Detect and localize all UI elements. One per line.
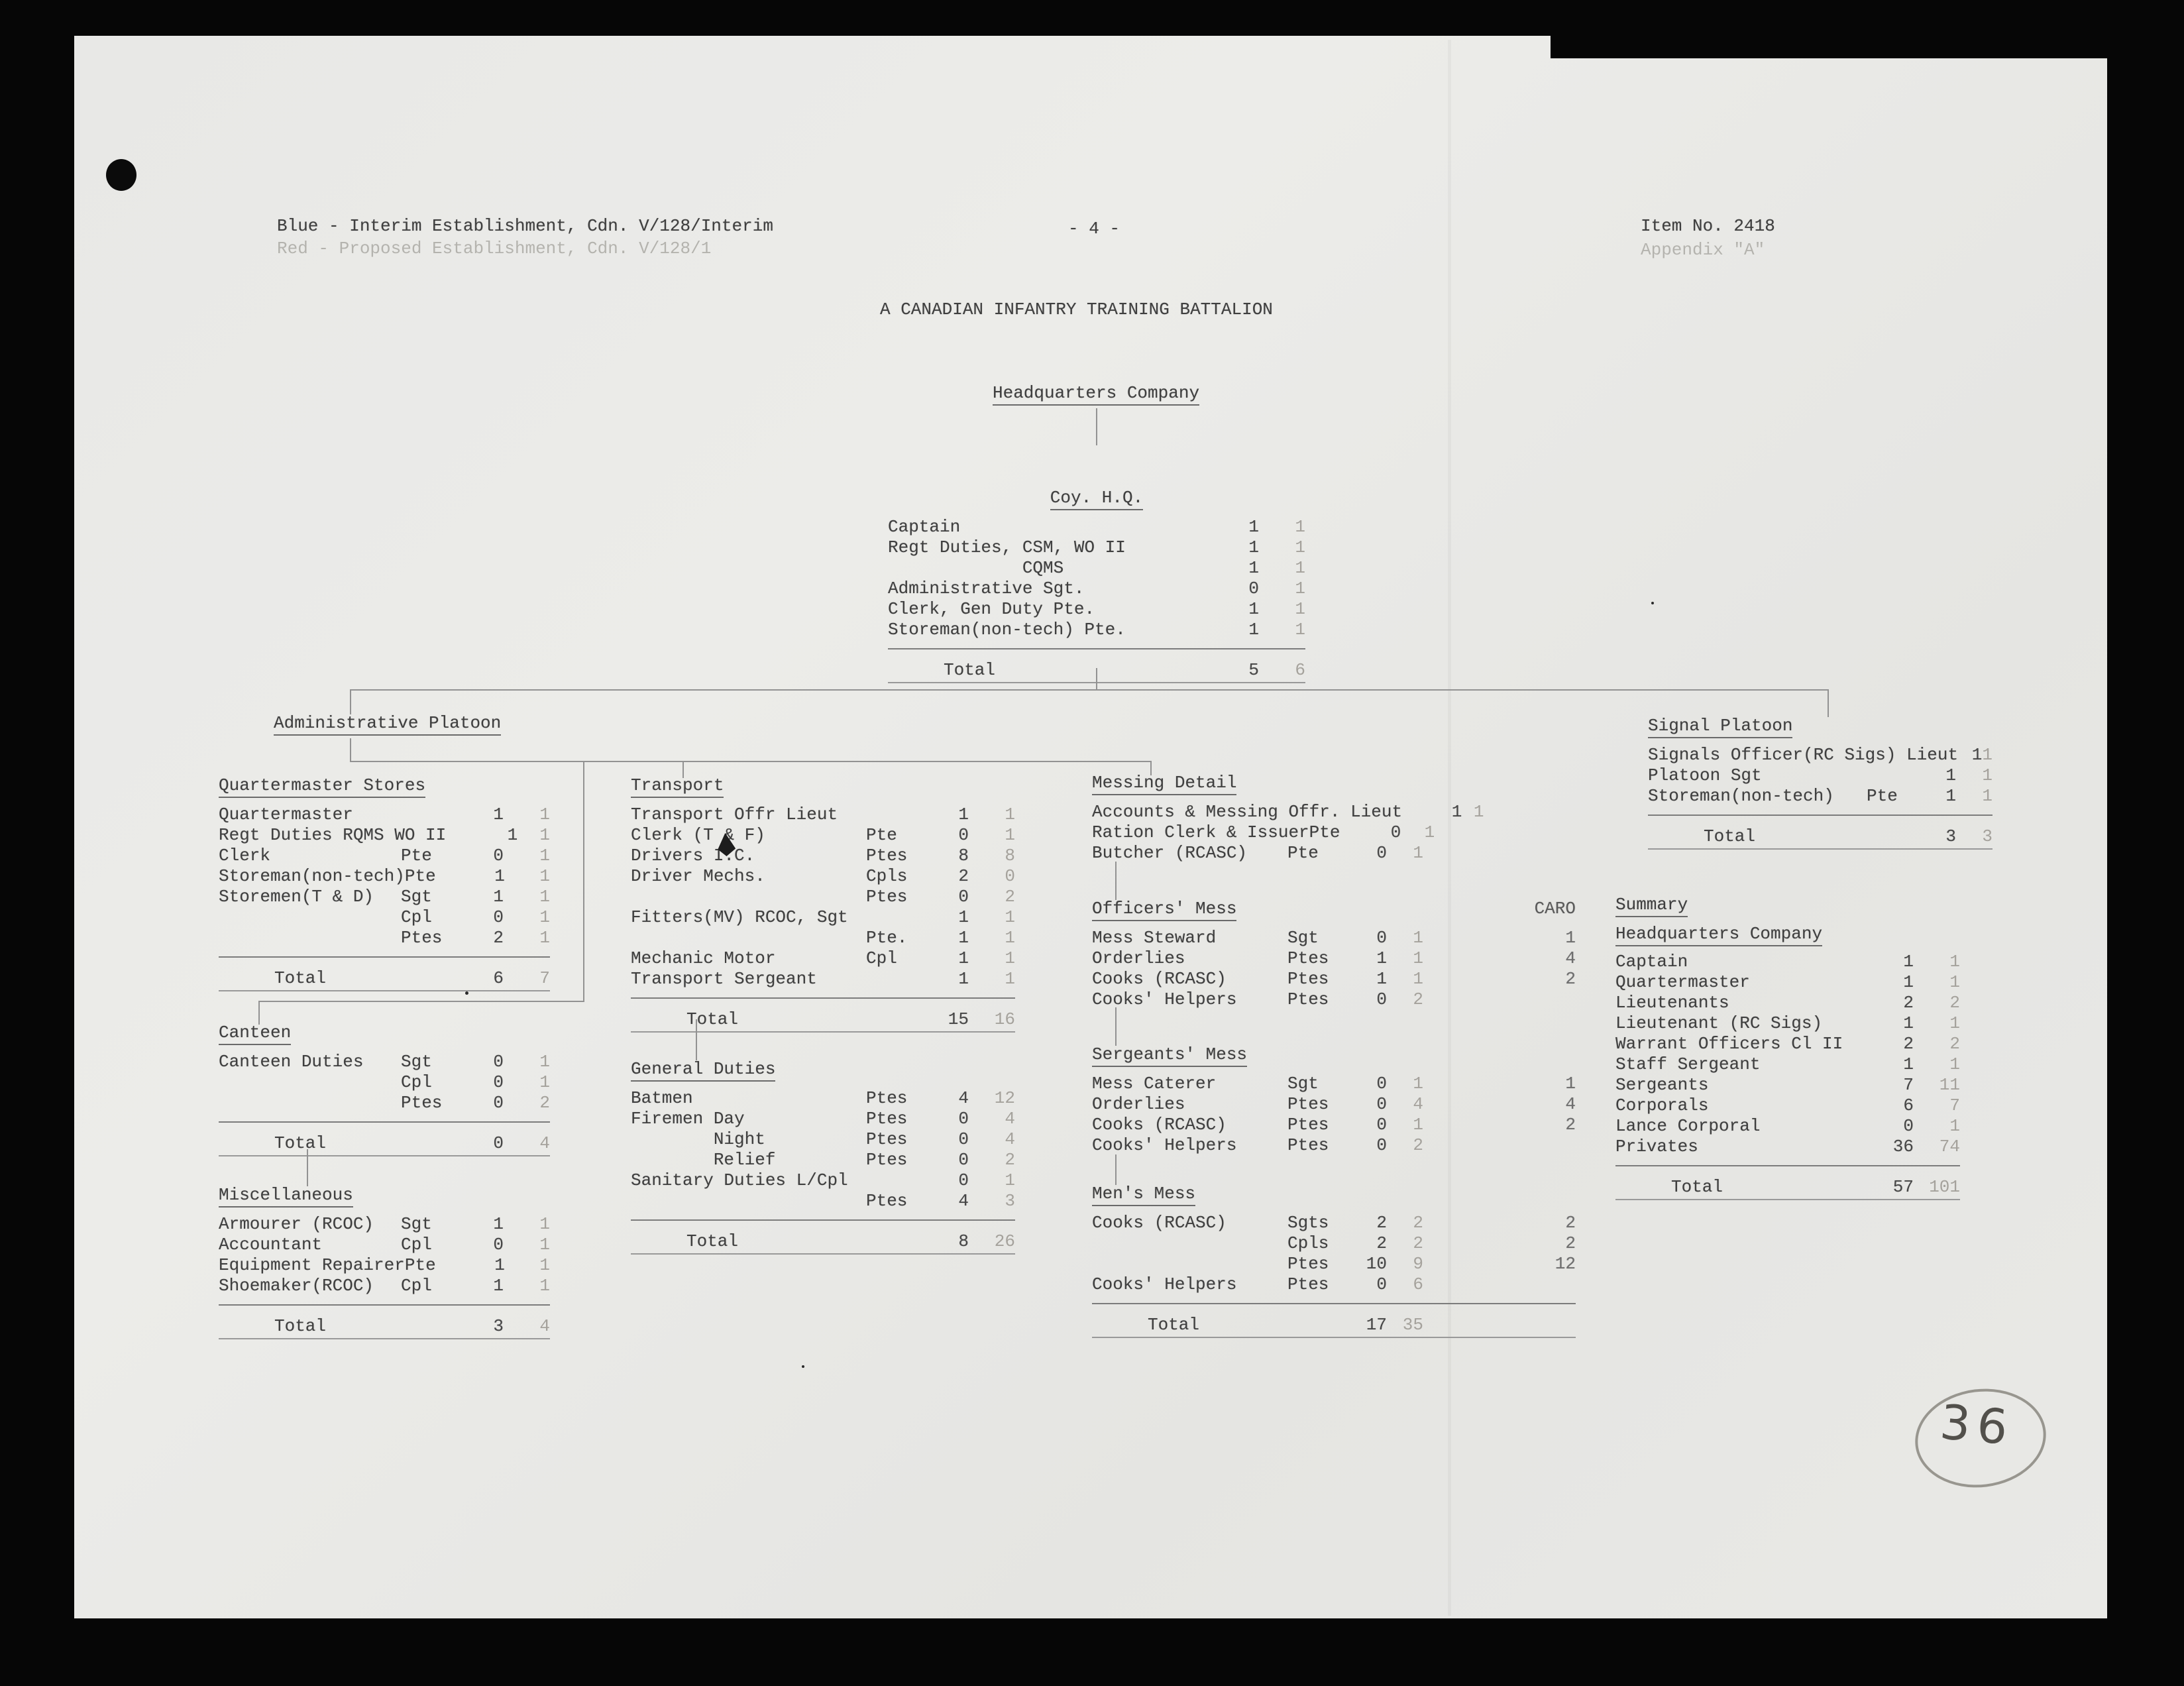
interim-count: 0 bbox=[464, 1072, 504, 1093]
caro-count bbox=[1484, 802, 1576, 822]
role-label: Privates bbox=[1615, 1137, 1874, 1157]
interim-count: 1 bbox=[929, 907, 969, 928]
total-rule-top bbox=[1615, 1165, 1960, 1166]
table-row: CQMS11 bbox=[888, 558, 1305, 579]
section-title-row: General Duties bbox=[631, 1059, 1015, 1082]
caro-count: 4 bbox=[1423, 1094, 1576, 1115]
interim-count: 3 bbox=[1920, 826, 1956, 847]
role-label: Administrative Sgt. bbox=[888, 579, 1219, 599]
interim-count: 0 bbox=[1350, 989, 1387, 1010]
table-row: Fitters(MV) RCOC, Sgt11 bbox=[631, 907, 1015, 928]
interim-count: 1 bbox=[464, 805, 504, 825]
table-row: OrderliesPtes044 bbox=[1092, 1094, 1576, 1115]
proposed-count: 1 bbox=[504, 846, 550, 866]
interim-count: 17 bbox=[1350, 1315, 1387, 1335]
connector-line-vertical bbox=[307, 1149, 308, 1186]
proposed-count: 1 bbox=[969, 907, 1015, 928]
table-row: Cpl01 bbox=[219, 907, 550, 928]
role-label: Lieutenant (RC Sigs) bbox=[1615, 1013, 1874, 1034]
role-label: Storeman(non-tech) Pte. bbox=[888, 620, 1219, 640]
table-row: Staff Sergeant11 bbox=[1615, 1054, 1960, 1075]
interim-count: 2 bbox=[1874, 993, 1914, 1013]
scan-border-artifact bbox=[1551, 36, 2184, 58]
table-row: Clerk, Gen Duty Pte.11 bbox=[888, 599, 1305, 620]
table-row: ClerkPte01 bbox=[219, 846, 550, 866]
rank-label bbox=[446, 825, 490, 846]
interim-count: 1 bbox=[1874, 1054, 1914, 1075]
table-row: Cpls222 bbox=[1092, 1233, 1576, 1254]
interim-count: 1 bbox=[466, 1255, 504, 1276]
role-label: Staff Sergeant bbox=[1615, 1054, 1874, 1075]
rank-label: Sgts bbox=[1287, 1213, 1350, 1233]
interim-count: 1 bbox=[466, 866, 504, 887]
proposed-count: 1 bbox=[1914, 1116, 1960, 1137]
role-label: Orderlies bbox=[1092, 1094, 1287, 1115]
total-label: Total bbox=[888, 660, 1219, 681]
role-label: Cooks (RCASC) bbox=[1092, 1213, 1287, 1233]
rank-label bbox=[1958, 745, 1972, 765]
dust-speck bbox=[1651, 602, 1654, 604]
interim-count: 1 bbox=[1874, 972, 1914, 993]
proposed-count: 1 bbox=[1387, 843, 1423, 864]
interim-count: 1 bbox=[1350, 969, 1387, 989]
rank-label bbox=[1867, 765, 1920, 786]
rank-label: Sgt bbox=[401, 1214, 464, 1235]
interim-count: 5 bbox=[1219, 660, 1259, 681]
proposed-count: 1 bbox=[1982, 745, 1993, 765]
role-label: Night bbox=[631, 1129, 866, 1150]
role-label: Platoon Sgt bbox=[1648, 765, 1867, 786]
rank-label: Ptes bbox=[1287, 1254, 1350, 1274]
rank-label: Pte bbox=[405, 1255, 466, 1276]
interim-count: 0 bbox=[929, 887, 969, 907]
interim-count: 1 bbox=[929, 969, 969, 989]
total-rule-top bbox=[1648, 815, 1993, 816]
section-title-row: Miscellaneous bbox=[219, 1185, 550, 1208]
rank-label: Cpl bbox=[866, 948, 929, 969]
interim-count: 1 bbox=[929, 928, 969, 948]
table-row: OrderliesPtes114 bbox=[1092, 948, 1576, 969]
role-label: Storemen(T & D) bbox=[219, 887, 401, 907]
proposed-count: 1 bbox=[1914, 952, 1960, 972]
rank-label: Cpl bbox=[401, 1235, 464, 1255]
role-label: Firemen Day bbox=[631, 1109, 866, 1129]
table-row: Storeman(non-tech) Pte.11 bbox=[888, 620, 1305, 640]
table-row: Captain11 bbox=[1615, 952, 1960, 972]
table-row: Ptes10912 bbox=[1092, 1254, 1576, 1274]
caro-count: 12 bbox=[1423, 1254, 1576, 1274]
interim-count: 0 bbox=[1350, 1074, 1387, 1094]
interim-count: 0 bbox=[1350, 1274, 1387, 1295]
proposed-count: 4 bbox=[1387, 1094, 1423, 1115]
interim-count: 0 bbox=[1350, 843, 1387, 864]
org-label-headquarters-company: Headquarters Company bbox=[993, 383, 1199, 406]
proposed-count: 1 bbox=[1914, 1054, 1960, 1075]
table-row: Privates3674 bbox=[1615, 1137, 1960, 1157]
table-row: ReliefPtes02 bbox=[631, 1150, 1015, 1170]
rank-label: Pte bbox=[1287, 843, 1350, 864]
rank-label bbox=[866, 907, 929, 928]
proposed-count: 1 bbox=[504, 1052, 550, 1072]
section-title: Summary bbox=[1615, 895, 1688, 917]
proposed-count: 8 bbox=[969, 846, 1015, 866]
role-label: Cooks' Helpers bbox=[1092, 1135, 1287, 1156]
interim-count: 36 bbox=[1874, 1137, 1914, 1157]
table-row: AccountantCpl01 bbox=[219, 1235, 550, 1255]
proposed-count: 7 bbox=[1914, 1096, 1960, 1116]
role-label: Fitters(MV) RCOC, Sgt bbox=[631, 907, 866, 928]
rank-label: Sgt bbox=[401, 1052, 464, 1072]
caro-column-header: CARO bbox=[1423, 899, 1576, 921]
total-rule-top bbox=[631, 1219, 1015, 1221]
table-row: Quartermaster11 bbox=[219, 805, 550, 825]
proposed-count: 4 bbox=[504, 1316, 550, 1337]
interim-count: 1 bbox=[464, 1276, 504, 1296]
rank-label bbox=[401, 805, 464, 825]
org-label-administrative-platoon: Administrative Platoon bbox=[274, 713, 501, 736]
total-label: Total bbox=[219, 968, 401, 989]
interim-count: 57 bbox=[1874, 1177, 1914, 1198]
table-row: Clerk (T & F)Pte01 bbox=[631, 825, 1015, 846]
table-row: Lance Corporal01 bbox=[1615, 1116, 1960, 1137]
table-row: NightPtes04 bbox=[631, 1129, 1015, 1150]
section-subtitle: Headquarters Company bbox=[1615, 924, 1822, 946]
proposed-count: 2 bbox=[1387, 1213, 1423, 1233]
interim-count: 0 bbox=[1350, 928, 1387, 948]
total-label: Total bbox=[219, 1316, 401, 1337]
proposed-count: 1 bbox=[969, 969, 1015, 989]
role-label: Cooks (RCASC) bbox=[1092, 1115, 1287, 1135]
interim-count: 1 bbox=[1874, 1013, 1914, 1034]
caro-count bbox=[1423, 843, 1576, 864]
connector-line-vertical bbox=[350, 738, 351, 762]
rank-label bbox=[866, 969, 929, 989]
table-row: Cooks' HelpersPtes02 bbox=[1092, 1135, 1576, 1156]
rank-label: Ptes bbox=[1287, 948, 1350, 969]
total-row: Total67 bbox=[219, 968, 550, 989]
proposed-count: 11 bbox=[1914, 1075, 1960, 1096]
rank-label: Cpl bbox=[401, 1072, 464, 1093]
table-row: Cooks' HelpersPtes02 bbox=[1092, 989, 1576, 1010]
header-legend-red: Red - Proposed Establishment, Cdn. V/128… bbox=[277, 239, 711, 258]
table-row: Signals Officer(RC Sigs) Lieut11 bbox=[1648, 745, 1993, 765]
role-label: Storeman(non-tech) bbox=[1648, 786, 1867, 807]
interim-count: 0 bbox=[464, 907, 504, 928]
rank-label: Ptes bbox=[866, 887, 929, 907]
role-label: Regt Duties RQMS WO II bbox=[219, 825, 446, 846]
appendix-label: Appendix "A" bbox=[1641, 240, 1765, 260]
table-row: Quartermaster11 bbox=[1615, 972, 1960, 993]
proposed-count: 9 bbox=[1387, 1254, 1423, 1274]
section-canteen: CanteenCanteen DutiesSgt01Cpl01Ptes02Tot… bbox=[219, 1023, 550, 1156]
proposed-count: 1 bbox=[1387, 948, 1423, 969]
proposed-count: 1 bbox=[1387, 969, 1423, 989]
total-rule-bottom bbox=[219, 990, 550, 991]
role-label: Lance Corporal bbox=[1615, 1116, 1874, 1137]
connector-line-vertical bbox=[682, 762, 684, 778]
role-label: Shoemaker(RCOC) bbox=[219, 1276, 401, 1296]
section-title: Quartermaster Stores bbox=[219, 775, 425, 798]
rank-label: Pte bbox=[405, 866, 466, 887]
role-label bbox=[631, 887, 866, 907]
interim-count: 2 bbox=[464, 928, 504, 948]
role-label: Corporals bbox=[1615, 1096, 1874, 1116]
proposed-count: 1 bbox=[504, 907, 550, 928]
role-label bbox=[219, 1093, 401, 1113]
section-officers-mess: Officers' MessCAROMess StewardSgt011Orde… bbox=[1092, 899, 1576, 1010]
interim-count: 1 bbox=[464, 1214, 504, 1235]
interim-count: 1 bbox=[929, 948, 969, 969]
table-row: Lieutenants22 bbox=[1615, 993, 1960, 1013]
role-label: Relief bbox=[631, 1150, 866, 1170]
total-rule-bottom bbox=[1615, 1199, 1960, 1200]
table-row: Mechanic MotorCpl11 bbox=[631, 948, 1015, 969]
role-label: Quartermaster bbox=[1615, 972, 1874, 993]
rank-label: Ptes bbox=[1287, 989, 1350, 1010]
interim-count: 3 bbox=[464, 1316, 504, 1337]
connector-line-vertical bbox=[258, 1002, 260, 1025]
total-rule-bottom bbox=[631, 1031, 1015, 1033]
interim-count: 1 bbox=[1920, 765, 1956, 786]
role-label: Batmen bbox=[631, 1088, 866, 1109]
table-row: Storeman(non-tech)Pte11 bbox=[219, 866, 550, 887]
section-title-row: Officers' MessCARO bbox=[1092, 899, 1576, 921]
rank-label bbox=[1402, 802, 1440, 822]
role-label: Storeman(non-tech) bbox=[219, 866, 405, 887]
rank-label: Cpl bbox=[401, 907, 464, 928]
table-row: Drivers I.C.Ptes88 bbox=[631, 846, 1015, 866]
interim-count: 1 bbox=[464, 887, 504, 907]
proposed-count: 1 bbox=[969, 928, 1015, 948]
interim-count: 0 bbox=[929, 1109, 969, 1129]
rank-label: Ptes bbox=[866, 1191, 929, 1211]
rank-label: Sgt bbox=[401, 887, 464, 907]
role-label: Orderlies bbox=[1092, 948, 1287, 969]
total-label: Total bbox=[1092, 1315, 1287, 1335]
rank-label: Ptes bbox=[866, 846, 929, 866]
section-transport: TransportTransport Offr Lieut11Clerk (T … bbox=[631, 775, 1015, 1033]
section-title: Men's Mess bbox=[1092, 1184, 1195, 1206]
proposed-count: 3 bbox=[969, 1191, 1015, 1211]
proposed-count: 1 bbox=[1259, 599, 1305, 620]
role-label: Clerk (T & F) bbox=[631, 825, 866, 846]
caro-count bbox=[1423, 989, 1576, 1010]
section-title: Miscellaneous bbox=[219, 1185, 353, 1208]
proposed-count: 1 bbox=[505, 866, 550, 887]
interim-count: 1 bbox=[1874, 952, 1914, 972]
proposed-count: 1 bbox=[1956, 765, 1993, 786]
proposed-count: 2 bbox=[1914, 993, 1960, 1013]
interim-count: 0 bbox=[464, 1052, 504, 1072]
caro-count: 2 bbox=[1423, 1233, 1576, 1254]
total-rule-top bbox=[219, 956, 550, 958]
section-quartermaster-stores: Quartermaster StoresQuartermaster11Regt … bbox=[219, 775, 550, 991]
table-row: Pte.11 bbox=[631, 928, 1015, 948]
interim-count: 4 bbox=[929, 1088, 969, 1109]
role-label: Warrant Officers Cl II bbox=[1615, 1034, 1874, 1054]
table-row: Cooks (RCASC)Ptes112 bbox=[1092, 969, 1576, 989]
rank-label: Cpl bbox=[401, 1276, 464, 1296]
table-row: Transport Offr Lieut11 bbox=[631, 805, 1015, 825]
caro-count: 4 bbox=[1423, 948, 1576, 969]
proposed-count: 1 bbox=[1387, 928, 1423, 948]
proposed-count: 1 bbox=[1259, 537, 1305, 558]
interim-count: 0 bbox=[1350, 1115, 1387, 1135]
interim-count: 1 bbox=[1219, 537, 1259, 558]
role-label: Cooks (RCASC) bbox=[1092, 969, 1287, 989]
role-label: Ration Clerk & Issuer bbox=[1092, 822, 1309, 843]
caro-count bbox=[1435, 822, 1576, 843]
section-title: Canteen bbox=[219, 1023, 291, 1045]
connector-line-horizontal bbox=[350, 761, 1152, 762]
proposed-count: 1 bbox=[969, 825, 1015, 846]
interim-count: 1 bbox=[1350, 948, 1387, 969]
rank-label: Ptes bbox=[1287, 1135, 1350, 1156]
total-rule-top bbox=[219, 1304, 550, 1306]
table-row: Butcher (RCASC)Pte01 bbox=[1092, 843, 1576, 864]
proposed-count: 7 bbox=[504, 968, 550, 989]
table-row: Cooks (RCASC)Sgts222 bbox=[1092, 1213, 1576, 1233]
proposed-count: 1 bbox=[504, 1276, 550, 1296]
proposed-count: 16 bbox=[969, 1009, 1015, 1030]
total-row: Total826 bbox=[631, 1231, 1015, 1252]
rank-label: Pte. bbox=[866, 928, 929, 948]
total-rule-bottom bbox=[219, 1155, 550, 1156]
dust-speck bbox=[465, 991, 468, 995]
proposed-count: 2 bbox=[1387, 989, 1423, 1010]
role-label bbox=[631, 928, 866, 948]
proposed-count: 1 bbox=[1259, 579, 1305, 599]
caro-count bbox=[1423, 1315, 1576, 1335]
rank-label bbox=[401, 968, 464, 989]
role-label bbox=[1092, 1254, 1287, 1274]
proposed-count: 1 bbox=[969, 948, 1015, 969]
proposed-count: 3 bbox=[1956, 826, 1993, 847]
proposed-count: 101 bbox=[1914, 1177, 1960, 1198]
interim-count: 7 bbox=[1874, 1075, 1914, 1096]
proposed-count: 4 bbox=[969, 1109, 1015, 1129]
role-label: Captain bbox=[1615, 952, 1874, 972]
interim-count: 6 bbox=[1874, 1096, 1914, 1116]
table-row: Regt Duties, CSM, WO II11 bbox=[888, 537, 1305, 558]
total-rule-bottom bbox=[1092, 1337, 1576, 1338]
interim-count: 0 bbox=[1350, 1094, 1387, 1115]
table-row: BatmenPtes412 bbox=[631, 1088, 1015, 1109]
table-row: Ptes43 bbox=[631, 1191, 1015, 1211]
section-summary: SummaryHeadquarters CompanyCaptain11Quar… bbox=[1615, 895, 1960, 1200]
rank-label: Cpls bbox=[866, 866, 929, 887]
role-label: Mechanic Motor bbox=[631, 948, 866, 969]
proposed-count: 0 bbox=[969, 866, 1015, 887]
total-label: Total bbox=[219, 1133, 401, 1154]
proposed-count: 2 bbox=[1914, 1034, 1960, 1054]
rank-label: Pte bbox=[1867, 786, 1920, 807]
caro-count: 1 bbox=[1423, 928, 1576, 948]
role-label: Clerk, Gen Duty Pte. bbox=[888, 599, 1219, 620]
total-row: Total1735 bbox=[1092, 1315, 1576, 1335]
table-row: Administrative Sgt.01 bbox=[888, 579, 1305, 599]
caro-count: 2 bbox=[1423, 969, 1576, 989]
table-row: Storemen(T & D)Sgt11 bbox=[219, 887, 550, 907]
proposed-count: 1 bbox=[504, 1072, 550, 1093]
interim-count: 8 bbox=[929, 1231, 969, 1252]
rank-label: Ptes bbox=[1287, 1274, 1350, 1295]
rank-label bbox=[866, 1170, 929, 1191]
connector-line-vertical bbox=[350, 691, 351, 714]
interim-count: 2 bbox=[929, 866, 969, 887]
proposed-count: 2 bbox=[1387, 1135, 1423, 1156]
role-label: Drivers I.C. bbox=[631, 846, 866, 866]
rank-label: Sgt bbox=[1287, 1074, 1350, 1094]
table-row: Cpl01 bbox=[219, 1072, 550, 1093]
rank-label: Sgt bbox=[1287, 928, 1350, 948]
page-number: - 4 - bbox=[1068, 219, 1120, 239]
table-row: Shoemaker(RCOC)Cpl11 bbox=[219, 1276, 550, 1296]
interim-count: 1 bbox=[490, 825, 518, 846]
proposed-count: 1 bbox=[504, 1235, 550, 1255]
interim-count: 1 bbox=[1972, 745, 1983, 765]
interim-count: 1 bbox=[1219, 558, 1259, 579]
section-title-row: Coy. H.Q. bbox=[888, 488, 1305, 510]
role-label: Cooks' Helpers bbox=[1092, 1274, 1287, 1295]
table-row: Platoon Sgt11 bbox=[1648, 765, 1993, 786]
interim-count: 0 bbox=[464, 1235, 504, 1255]
role-label: Signals Officer(RC Sigs) Lieut bbox=[1648, 745, 1958, 765]
total-row: Total34 bbox=[219, 1316, 550, 1337]
table-row: Ptes02 bbox=[219, 1093, 550, 1113]
proposed-count: 1 bbox=[1956, 786, 1993, 807]
caro-count bbox=[1423, 1135, 1576, 1156]
connector-line-vertical bbox=[1828, 691, 1829, 717]
proposed-count: 6 bbox=[1259, 660, 1305, 681]
section-title: Messing Detail bbox=[1092, 773, 1236, 795]
rank-label: Ptes bbox=[866, 1129, 929, 1150]
proposed-count: 1 bbox=[1259, 620, 1305, 640]
role-label: Sanitary Duties L/Cpl bbox=[631, 1170, 866, 1191]
total-rule-top bbox=[631, 997, 1015, 999]
role-label: Mess Caterer bbox=[1092, 1074, 1287, 1094]
caro-count: 2 bbox=[1423, 1115, 1576, 1135]
total-rule-bottom bbox=[631, 1253, 1015, 1255]
table-row: Lieutenant (RC Sigs)11 bbox=[1615, 1013, 1960, 1034]
role-label: Equipment Repairer bbox=[219, 1255, 405, 1276]
interim-count: 0 bbox=[929, 825, 969, 846]
interim-count: 2 bbox=[1350, 1233, 1387, 1254]
section-signal-platoon: Signal PlatoonSignals Officer(RC Sigs) L… bbox=[1648, 716, 1993, 850]
section-sergeants-mess: Sergeants' MessMess CatererSgt011Orderli… bbox=[1092, 1044, 1576, 1156]
section-mens-mess: Men's MessCooks (RCASC)Sgts222Cpls222Pte… bbox=[1092, 1184, 1576, 1338]
proposed-count: 1 bbox=[504, 928, 550, 948]
section-title-row: Signal Platoon bbox=[1648, 716, 1993, 738]
total-label: Total bbox=[1648, 826, 1867, 847]
interim-count: 8 bbox=[929, 846, 969, 866]
connector-line-vertical bbox=[1150, 762, 1152, 775]
proposed-count: 1 bbox=[504, 887, 550, 907]
section-title-row: Transport bbox=[631, 775, 1015, 798]
role-label: Clerk bbox=[219, 846, 401, 866]
interim-count: 0 bbox=[464, 846, 504, 866]
proposed-count: 1 bbox=[1387, 1074, 1423, 1094]
interim-count: 0 bbox=[1219, 579, 1259, 599]
interim-count: 10 bbox=[1350, 1254, 1387, 1274]
proposed-count: 1 bbox=[969, 1170, 1015, 1191]
handwritten-page-number: 36 bbox=[1938, 1394, 2017, 1455]
section-title: Coy. H.Q. bbox=[1050, 488, 1143, 510]
connector-line-vertical bbox=[583, 762, 584, 1002]
total-row: Total04 bbox=[219, 1133, 550, 1154]
section-title: Signal Platoon bbox=[1648, 716, 1792, 738]
total-label: Total bbox=[631, 1009, 866, 1030]
